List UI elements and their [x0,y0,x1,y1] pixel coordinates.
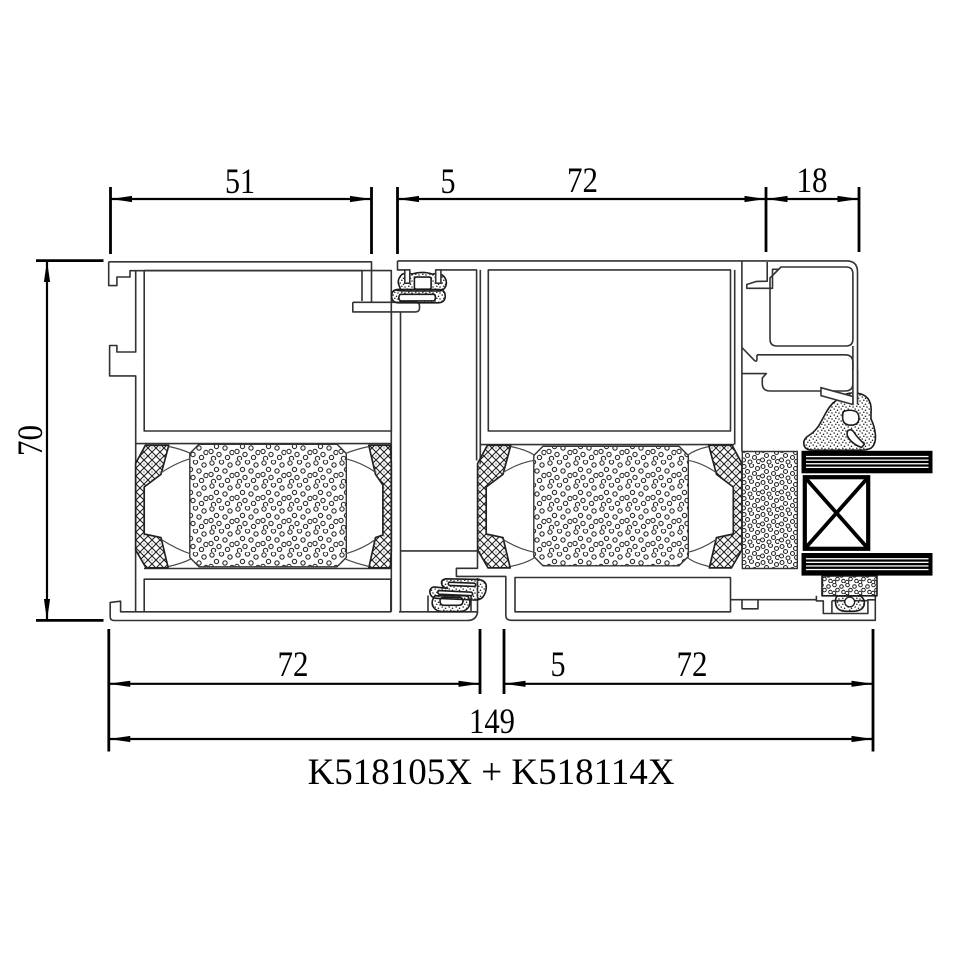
svg-text:5: 5 [441,161,456,201]
svg-text:70: 70 [10,425,50,456]
svg-text:72: 72 [677,644,708,684]
svg-text:72: 72 [567,160,598,200]
svg-text:5: 5 [551,644,566,684]
svg-text:18: 18 [797,160,828,200]
svg-text:K518105X + K518114X: K518105X + K518114X [308,752,675,793]
svg-text:149: 149 [469,701,515,741]
svg-text:51: 51 [225,161,255,201]
svg-text:72: 72 [278,644,309,684]
